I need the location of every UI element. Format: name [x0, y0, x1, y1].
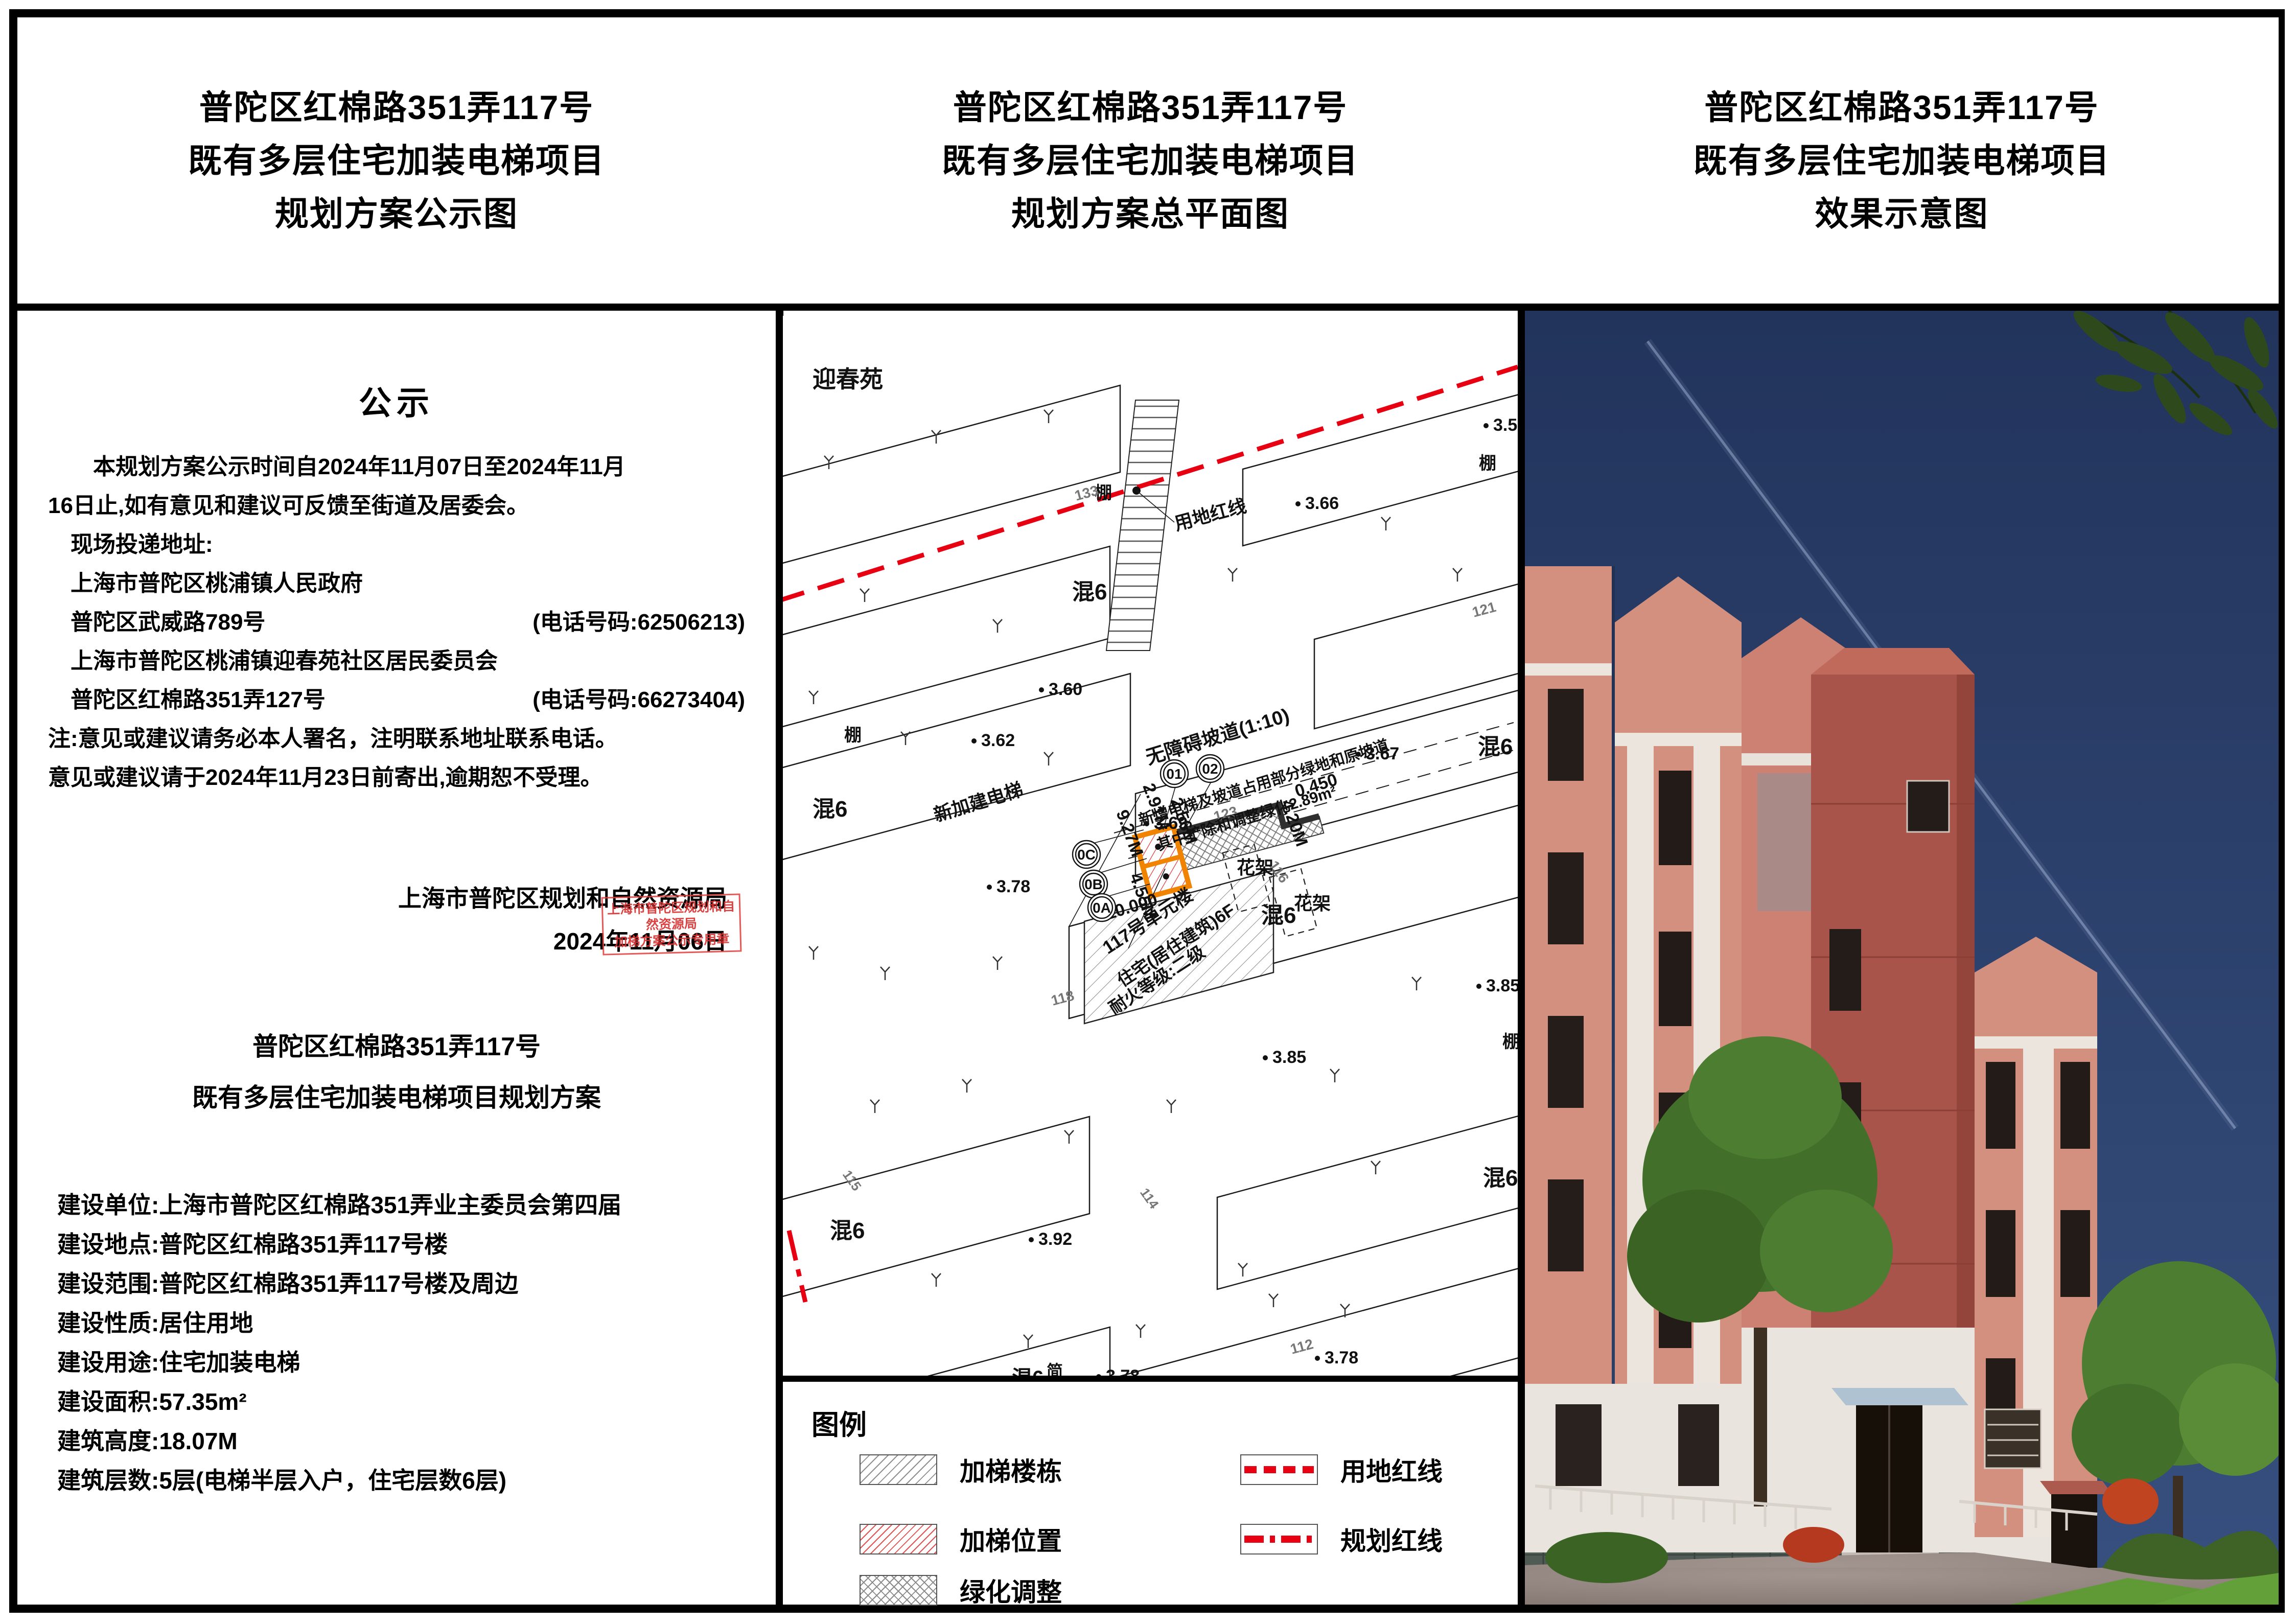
- notice-paragraph-line: 本规划方案公示时间自2024年11月07日至2024年11月: [48, 448, 750, 486]
- title-line: 普陀区红棉路351弄117号: [199, 90, 594, 124]
- title-public-notice-map: 普陀区红棉路351弄117号 既有多层住宅加装电梯项目 规划方案公示图: [17, 17, 776, 304]
- map-label: 棚: [1479, 454, 1496, 473]
- rendering-panel: [1525, 311, 2279, 1605]
- map-label: 混6: [1072, 579, 1107, 605]
- title-line: 既有多层住宅加装电梯项目: [942, 144, 1359, 177]
- side-door: [2051, 1494, 2097, 1571]
- elevation-dot: [1039, 687, 1044, 692]
- map-label: 3.66: [1305, 494, 1339, 513]
- notice-address-1-row: 普陀区武威路789号 (电话号码:62506213): [48, 603, 750, 642]
- map-label: 迎春苑: [813, 366, 883, 392]
- plan-title-block: 普陀区红棉路351弄117号 既有多层住宅加装电梯项目规划方案: [17, 1021, 776, 1123]
- svg-text:0A: 0A: [1093, 900, 1111, 916]
- seal-line: 上海市普陀区规划和自然资源局: [605, 898, 738, 935]
- side-awning: [2040, 1481, 2113, 1494]
- map-label: 3.60: [1049, 680, 1082, 699]
- cornice: [1525, 663, 1612, 676]
- project-details: 建设单位:上海市普陀区红棉路351弄业主委员会第四届 建设地点:普陀区红棉路35…: [57, 1186, 755, 1500]
- red-dashed-line-swatch-icon: [1240, 1454, 1318, 1485]
- title-line: 规划方案总平面图: [1011, 197, 1289, 230]
- elevation-dot: [1476, 984, 1481, 989]
- announcement-poster: 普陀区红棉路351弄117号 既有多层住宅加装电梯项目 规划方案公示图 普陀区红…: [0, 0, 2296, 1624]
- map-label: 3.85: [1272, 1048, 1306, 1067]
- notice-address-2-row: 普陀区红棉路351弄127号 (电话号码:66273404): [48, 681, 750, 720]
- axis-bubble: 02: [1196, 755, 1224, 782]
- cornice: [1975, 1036, 2097, 1049]
- plan-title-line: 普陀区红棉路351弄117号: [17, 1021, 776, 1072]
- map-label: 花架: [1237, 857, 1273, 878]
- legend-item-elevator-location: 加梯位置: [860, 1521, 1062, 1558]
- legend-item-green-adjustment: 绿化调整: [860, 1572, 1062, 1609]
- notice-paragraph-line: 16日止,如有意见和建议可反馈至街道及居委会。: [48, 486, 750, 525]
- legend-label: 规划红线: [1340, 1521, 1443, 1558]
- axis-bubble: 0C: [1073, 841, 1100, 868]
- building-rendering: [1525, 311, 2279, 1605]
- hatch-gray-swatch-icon: [860, 1454, 937, 1485]
- elevation-dot: [1315, 1356, 1320, 1361]
- content-band: 公示 本规划方案公示时间自2024年11月07日至2024年11月 16日止,如…: [17, 311, 2279, 1605]
- elevation-dot: [1483, 423, 1489, 428]
- title-line: 既有多层住宅加装电梯项目: [188, 144, 605, 177]
- svg-text:0B: 0B: [1084, 876, 1103, 892]
- site-plan-drawing: 迎春苑混6混6混6混6混6混6混6简混6棚棚棚棚1331231211181161…: [783, 311, 1518, 1376]
- legend-label: 绿化调整: [960, 1572, 1062, 1609]
- red-dashdot-line-swatch-icon: [1240, 1524, 1318, 1555]
- official-seal: 上海市普陀区规划和自然资源局 加梯方案公示专用章: [601, 893, 742, 955]
- svg-text:0C: 0C: [1077, 847, 1096, 863]
- plan-title-line: 既有多层住宅加装电梯项目规划方案: [17, 1072, 776, 1123]
- map-label: 混6: [1478, 734, 1513, 759]
- map-label: 混6: [1012, 1367, 1043, 1376]
- map-label: 混6: [830, 1218, 865, 1243]
- detail-row: 建设地点:普陀区红棉路351弄117号楼: [57, 1225, 755, 1264]
- map-label: 3.78: [1106, 1366, 1140, 1376]
- legend-item-elevator-building: 加梯楼栋: [860, 1451, 1062, 1488]
- legend-title: 图例: [811, 1402, 867, 1443]
- hatch-red-swatch-icon: [860, 1524, 937, 1555]
- map-label: 3.78: [1325, 1348, 1358, 1367]
- white-pilaster: [1627, 746, 1654, 1414]
- detail-row: 建设性质:居住用地: [57, 1304, 755, 1343]
- base-window: [1678, 1404, 1719, 1486]
- tree-trunk: [1754, 1328, 1767, 1506]
- map-label: 简: [1047, 1362, 1063, 1376]
- notice-address-1-detail: 普陀区武威路789号: [48, 603, 265, 642]
- notice-heading: 公示: [17, 377, 776, 424]
- map-label: 混6: [1261, 903, 1296, 928]
- detail-row: 建筑层数:5层(电梯半层入户，住宅层数6层): [57, 1461, 755, 1500]
- title-line: 既有多层住宅加装电梯项目: [1694, 144, 2111, 177]
- notice-address-intro: 现场投递地址:: [48, 525, 750, 564]
- shaft-small-window: [1907, 781, 1949, 832]
- axis-bubble: 0A: [1088, 894, 1116, 921]
- map-label: 3.92: [1038, 1229, 1072, 1249]
- title-rendering: 普陀区红棉路351弄117号 既有多层住宅加装电梯项目 效果示意图: [1525, 17, 2279, 304]
- notice-address-1: 上海市普陀区桃浦镇人民政府: [48, 564, 750, 603]
- notice-panel: 公示 本规划方案公示时间自2024年11月07日至2024年11月 16日止,如…: [17, 311, 776, 1605]
- map-label: 棚: [844, 726, 862, 745]
- title-line: 普陀区红棉路351弄117号: [1704, 90, 2099, 124]
- notice-address-2: 上海市普陀区桃浦镇迎春苑社区居民委员会: [48, 642, 750, 681]
- map-label: 3.62: [981, 731, 1015, 750]
- notice-address-2-phone: (电话号码:66273404): [532, 681, 745, 720]
- legend-item-planning-red-line: 规划红线: [1240, 1521, 1443, 1558]
- elevation-dot: [1029, 1237, 1034, 1242]
- cornice: [1615, 733, 1742, 746]
- legend-item-land-red-line: 用地红线: [1240, 1451, 1443, 1488]
- elevation-dot: [987, 885, 992, 890]
- poster-frame: 普陀区红棉路351弄117号 既有多层住宅加装电梯项目 规划方案公示图 普陀区红…: [9, 9, 2285, 1613]
- legend-label: 加梯楼栋: [960, 1451, 1062, 1488]
- map-label: 混6: [1483, 1166, 1518, 1191]
- detail-row: 建设范围:普陀区红棉路351弄117号楼及周边: [57, 1264, 755, 1304]
- red-bush: [1783, 1527, 1844, 1563]
- axis-bubble: 01: [1161, 760, 1188, 787]
- red-bush: [2102, 1478, 2159, 1524]
- base-window: [1556, 1404, 1602, 1486]
- map-label: 3.78: [996, 877, 1030, 896]
- detail-row: 建设用途:住宅加装电梯: [57, 1343, 755, 1382]
- map-legend: 图例 加梯楼栋 加梯位置 绿化调整: [783, 1376, 1518, 1605]
- notice-note-1: 注:意见或建议请务必本人署名，注明联系地址联系电话。: [48, 720, 750, 758]
- map-label: 棚: [1502, 1032, 1518, 1052]
- detail-row: 建筑高度:18.07M: [57, 1422, 755, 1461]
- elevation-dot: [971, 738, 977, 744]
- header-band: 普陀区红棉路351弄117号 既有多层住宅加装电梯项目 规划方案公示图 普陀区红…: [17, 17, 2279, 311]
- detail-row: 建设单位:上海市普陀区红棉路351弄业主委员会第四届: [57, 1186, 755, 1225]
- title-site-plan: 普陀区红棉路351弄117号 既有多层住宅加装电梯项目 规划方案总平面图: [776, 17, 1525, 304]
- title-line: 效果示意图: [1815, 197, 1989, 230]
- notice-body: 本规划方案公示时间自2024年11月07日至2024年11月 16日止,如有意见…: [48, 448, 750, 797]
- notice-note-2: 意见或建议请于2024年11月23日前寄出,逾期恕不受理。: [48, 758, 750, 797]
- glass-canopy: [1831, 1388, 1968, 1405]
- crosshatch-swatch-icon: [860, 1575, 937, 1606]
- title-line: 普陀区红棉路351弄117号: [953, 90, 1348, 124]
- map-label: 3.85: [1486, 976, 1518, 995]
- tower-side-shade: [1957, 675, 1975, 1414]
- seal-line: 加梯方案公示专用章: [606, 931, 738, 951]
- notice-address-2-detail: 普陀区红棉路351弄127号: [48, 681, 326, 720]
- site-plan-panel: 迎春苑混6混6混6混6混6混6混6简混6棚棚棚棚1331231211181161…: [776, 311, 1525, 1605]
- detail-row: 建设面积:57.35m²: [57, 1382, 755, 1422]
- map-label: 花架: [1294, 893, 1331, 914]
- svg-text:01: 01: [1166, 766, 1182, 782]
- elevation-dot: [1263, 1055, 1268, 1060]
- map-label: 3.55: [1493, 415, 1518, 435]
- louver-window: [1985, 1409, 2041, 1468]
- svg-text:02: 02: [1202, 761, 1218, 777]
- bush: [1545, 1532, 1668, 1583]
- legend-label: 加梯位置: [960, 1521, 1062, 1558]
- map-label: 混6: [813, 797, 847, 822]
- title-line: 规划方案公示图: [275, 197, 518, 230]
- notice-address-1-phone: (电话号码:62506213): [532, 603, 745, 642]
- legend-label: 用地红线: [1340, 1451, 1443, 1488]
- elevation-dot: [1295, 501, 1301, 506]
